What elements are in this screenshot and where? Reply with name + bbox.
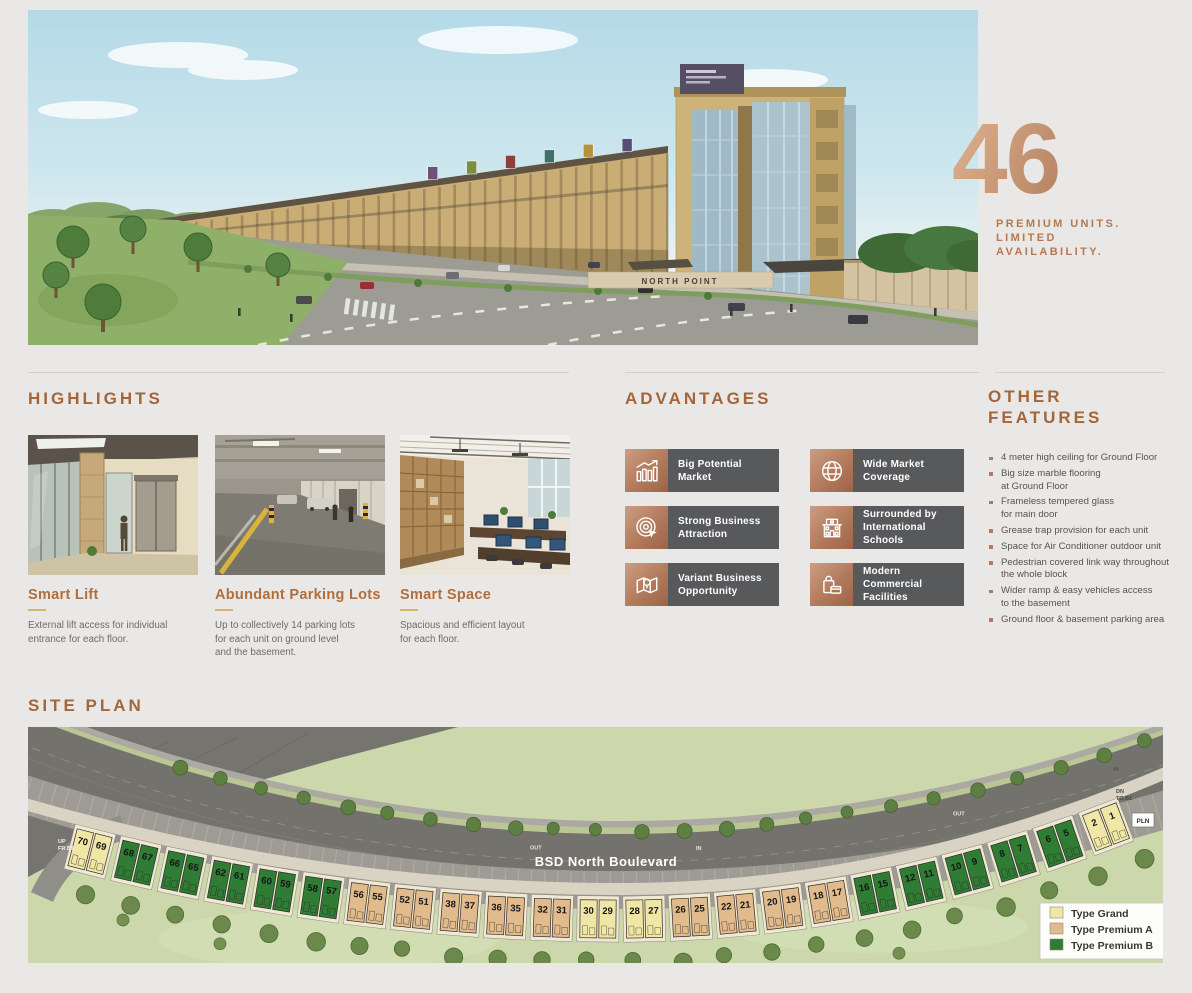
map-location-icon xyxy=(625,563,668,606)
feature-item: Pedestrian covered link way throughout t… xyxy=(988,557,1184,583)
card-title: Smart Lift xyxy=(28,587,198,603)
units-caption-line: AVAILABILITY. xyxy=(996,245,1182,259)
feature-item: Space for Air Conditioner outdoor unit xyxy=(988,541,1184,554)
advantage-modern-commercial-facilities: Modern Commercial Facilities xyxy=(810,563,964,606)
site-plan-small-label: TO B1 xyxy=(1116,796,1132,802)
site-plan-unit-number: 27 xyxy=(648,906,659,917)
site-plan-unit-number: 38 xyxy=(445,899,456,911)
site-plan-block: 6665 xyxy=(157,846,208,900)
card-title: Smart Space xyxy=(400,587,570,603)
site-plan-block: 3029 xyxy=(577,896,619,942)
units-caption-line: PREMIUM UNITS. xyxy=(996,217,1182,231)
site-plan-block: 5857 xyxy=(297,872,345,924)
feature-item: Big size marble flooring at Ground Floor xyxy=(988,468,1184,494)
site-plan-block: 2827 xyxy=(623,895,666,942)
road-label: BSD North Boulevard xyxy=(535,854,677,869)
brochure-page: { "hero": { "building_sign": "NORTH POIN… xyxy=(0,0,1192,993)
site-plan-unit-number: 26 xyxy=(675,904,686,916)
site-plan-small-label: FR B1 xyxy=(58,846,74,852)
site-plan-block: 5251 xyxy=(390,884,436,934)
site-plan-unit-number: 17 xyxy=(831,887,843,900)
pln-label: PLN xyxy=(1137,818,1150,825)
legend-label: Type Premium A xyxy=(1071,924,1153,936)
site-plan-unit-number: 51 xyxy=(418,896,430,908)
legend-label: Type Premium B xyxy=(1071,940,1153,952)
site-plan-small-label: IN xyxy=(1113,767,1119,773)
site-plan-small-label: OUT xyxy=(530,845,542,851)
advantage-strong-business-attraction: Strong Business Attraction xyxy=(625,506,779,549)
card-description: External lift access for individual entr… xyxy=(28,619,198,646)
divider xyxy=(995,372,1165,373)
title-underline xyxy=(28,609,46,611)
site-plan-legend: Type GrandType Premium AType Premium B xyxy=(1040,903,1163,959)
site-plan-unit-number: 35 xyxy=(510,903,522,915)
advantage-wide-market-coverage: Wide Market Coverage xyxy=(810,449,964,492)
advantage-label: Modern Commercial Facilities xyxy=(853,563,964,606)
divider xyxy=(28,372,569,373)
hero-render: NORTH POINT xyxy=(28,10,978,345)
advantage-label: Strong Business Attraction xyxy=(668,506,779,549)
title-underline xyxy=(215,609,233,611)
site-plan-block: 1615 xyxy=(850,867,900,920)
advantage-label: Variant Business Opportunity xyxy=(668,563,779,606)
feature-item: 4 meter high ceiling for Ground Floor xyxy=(988,452,1184,465)
site-plan-block: 5655 xyxy=(343,878,390,929)
divider xyxy=(625,372,979,373)
advantages-title: ADVANTAGES xyxy=(625,388,772,409)
site-plan-unit-number: 36 xyxy=(491,902,502,914)
highlight-card-parking: Abundant Parking Lots Up to collectively… xyxy=(215,435,385,660)
advantage-label: Wide Market Coverage xyxy=(853,449,964,492)
units-stat: 46 PREMIUM UNITS. LIMITED AVAILABILITY. xyxy=(952,112,1182,259)
site-plan-unit-number: 56 xyxy=(353,889,365,901)
site-plan-unit-number: 30 xyxy=(583,906,594,917)
site-plan-block: 3231 xyxy=(530,894,574,941)
highlights-title: HIGHLIGHTS xyxy=(28,388,163,409)
card-title: Abundant Parking Lots xyxy=(215,587,385,603)
feature-item: Frameless tempered glass for main door xyxy=(988,496,1184,522)
legend-label: Type Grand xyxy=(1071,908,1129,920)
site-plan-small-label: OUT xyxy=(953,811,965,817)
site-plan-block: 6261 xyxy=(204,856,254,909)
site-plan-unit-number: 16 xyxy=(858,882,871,895)
site-plan-unit-number: 52 xyxy=(399,894,411,906)
units-count: 46 xyxy=(952,112,1182,207)
site-plan-unit-number: 66 xyxy=(168,857,181,870)
site-plan-unit-number: 60 xyxy=(260,875,272,888)
site-plan-unit-number: 19 xyxy=(785,894,797,906)
other-features-title: OTHER FEATURES xyxy=(988,386,1102,428)
site-plan-unit-number: 58 xyxy=(307,883,319,895)
site-plan-block: 6059 xyxy=(250,864,299,916)
site-plan-unit-number: 25 xyxy=(694,903,706,915)
title-underline xyxy=(400,609,418,611)
highlight-card-smart-space: Smart Space Spacious and efficient layou… xyxy=(400,435,570,646)
site-plan-small-label: IN xyxy=(696,846,702,852)
site-plan-block: 2019 xyxy=(759,883,806,934)
site-plan-small-label: DN xyxy=(1116,789,1124,795)
site-plan-unit-number: 31 xyxy=(556,905,568,916)
site-plan-unit-number: 20 xyxy=(766,896,778,908)
feature-item: Wider ramp & easy vehicles access to the… xyxy=(988,585,1184,611)
units-caption: PREMIUM UNITS. LIMITED AVAILABILITY. xyxy=(996,217,1182,259)
office-space-photo xyxy=(400,435,570,575)
other-features-list: 4 meter high ceiling for Ground Floor Bi… xyxy=(988,452,1184,630)
target-cursor-icon xyxy=(625,506,668,549)
site-plan-block: 1817 xyxy=(804,876,853,928)
site-plan-unit-number: 59 xyxy=(279,878,291,891)
advantage-label: Big Potential Market xyxy=(668,449,779,492)
legend-swatch xyxy=(1050,939,1063,950)
site-plan-title: SITE PLAN xyxy=(28,695,144,716)
site-plan-unit-number: 57 xyxy=(325,885,337,897)
site-plan-unit-number: 29 xyxy=(602,906,613,917)
hero-image: NORTH POINT xyxy=(28,10,978,345)
highlight-card-smart-lift: Smart Lift External lift access for indi… xyxy=(28,435,198,646)
tower-sign xyxy=(680,64,744,94)
advantage-international-schools: Surrounded by International Schools xyxy=(810,506,964,549)
legend-swatch xyxy=(1050,907,1063,918)
site-plan-unit-number: 62 xyxy=(214,867,226,880)
advantage-big-potential-market: Big Potential Market xyxy=(625,449,779,492)
legend-swatch xyxy=(1050,923,1063,934)
shopping-bag-card-icon xyxy=(810,563,853,606)
building-sign-text: NORTH POINT xyxy=(641,277,718,286)
feature-item: Grease trap provision for each unit xyxy=(988,525,1184,538)
parking-garage-photo xyxy=(215,435,385,575)
site-plan-small-label: UP xyxy=(58,839,66,845)
feature-item: Ground floor & basement parking area xyxy=(988,614,1184,627)
site-plan-svg: 7069686766656261605958575655525138373635… xyxy=(28,727,1163,963)
units-caption-line: LIMITED xyxy=(996,231,1182,245)
site-plan-block: 2625 xyxy=(668,893,712,941)
site-plan-unit-number: 21 xyxy=(740,899,752,911)
smart-lift-photo xyxy=(28,435,198,575)
site-plan-unit-number: 18 xyxy=(812,890,824,903)
site-plan-unit-number: 37 xyxy=(464,900,475,912)
site-plan-unit-number: 32 xyxy=(537,904,548,915)
globe-icon xyxy=(810,449,853,492)
advantages-grid: Big Potential Market Wide Market Coverag… xyxy=(625,449,964,606)
bar-chart-growth-icon xyxy=(625,449,668,492)
advantage-variant-business-opportunity: Variant Business Opportunity xyxy=(625,563,779,606)
site-plan-unit-number: 28 xyxy=(629,906,640,917)
site-plan-block: 3635 xyxy=(483,892,527,940)
site-plan-unit-number: 55 xyxy=(372,891,385,903)
site-plan-unit-number: 22 xyxy=(721,901,733,913)
site-plan-block: 2221 xyxy=(714,889,760,939)
site-plan-block: 3837 xyxy=(437,888,482,937)
card-description: Spacious and efficient layout for each f… xyxy=(400,619,570,646)
card-description: Up to collectively 14 parking lots for e… xyxy=(215,619,385,660)
advantage-label: Surrounded by International Schools xyxy=(853,506,964,549)
school-building-icon xyxy=(810,506,853,549)
